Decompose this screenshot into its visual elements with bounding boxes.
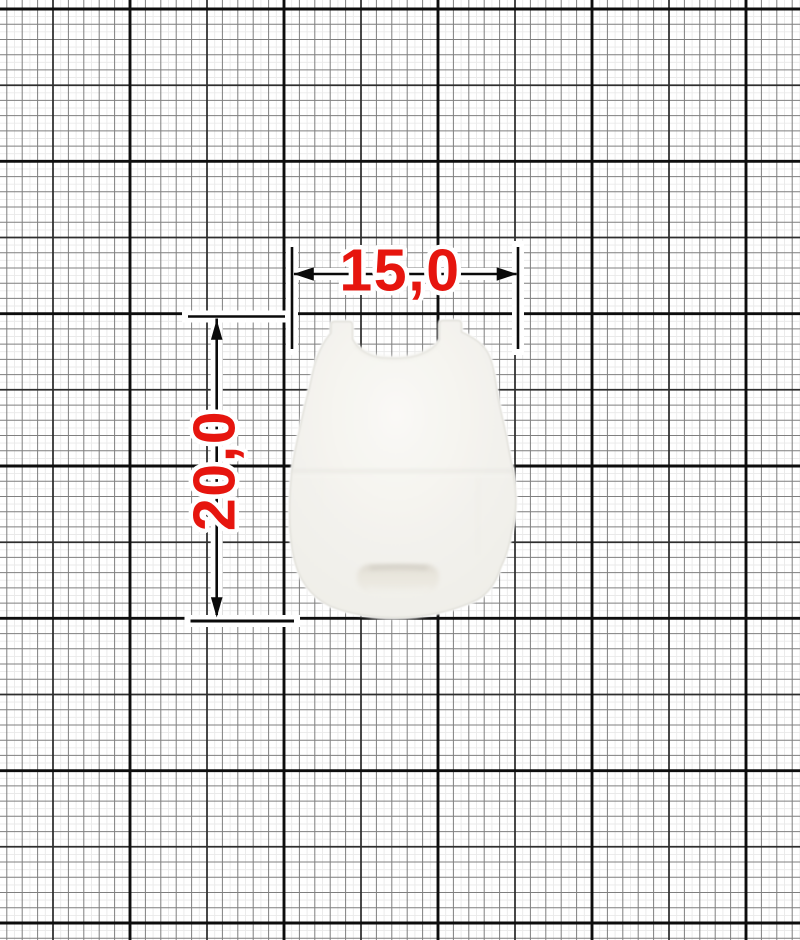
svg-text:15,0: 15,0 xyxy=(339,238,460,304)
svg-text:20,0: 20,0 xyxy=(181,410,247,531)
